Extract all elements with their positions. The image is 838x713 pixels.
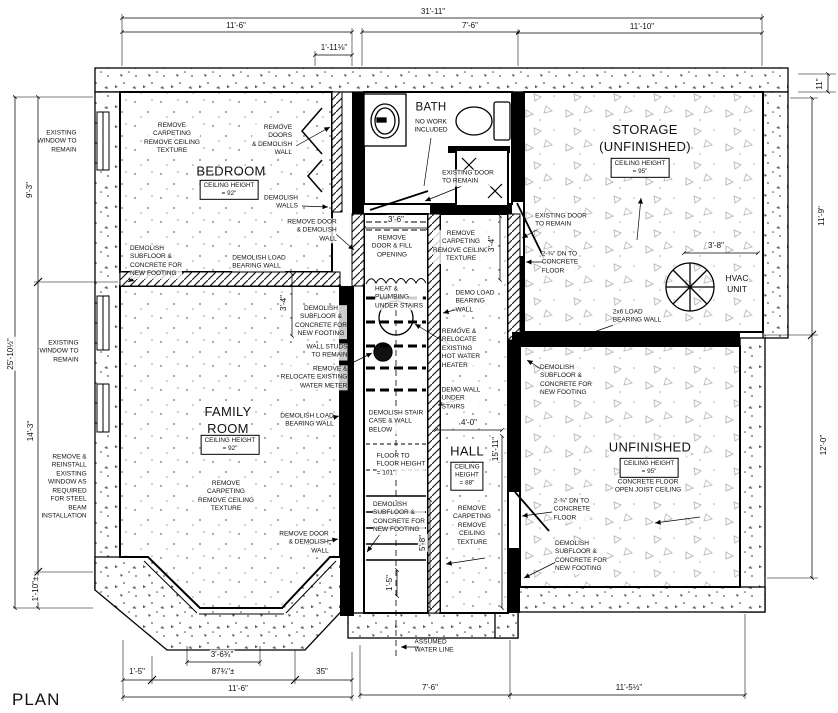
dim-right-jog: 11" xyxy=(815,77,825,90)
note-demolish-subfloor-unf-top: DEMOLISH SUBFLOOR & CONCRETE FOR NEW FOO… xyxy=(540,364,592,398)
load-bearing-2x6-wall xyxy=(512,332,740,346)
note-remove-door-family: REMOVE DOOR & DEMOLISH WALL xyxy=(279,530,328,555)
ceiling-box-storage: CEILING HEIGHT = 95" xyxy=(611,158,670,178)
window-icon xyxy=(97,112,109,170)
ceiling-box-unfinished: CEILING HEIGHT = 95" xyxy=(620,458,679,478)
dim-stair-b: 5'-8" xyxy=(418,534,428,552)
hvac-fan-icon xyxy=(666,263,714,311)
note-heat-plumbing: HEAT & PLUMBING UNDER STAIRS xyxy=(375,285,423,310)
room-label-hall: HALL xyxy=(450,444,484,461)
hall-floor xyxy=(440,214,508,613)
note-existing-window-mid: EXISTING WINDOW TO REMAIN xyxy=(39,339,78,364)
note-remove-hot-water: REMOVE & RELOCATE EXISTING HOT WATER HEA… xyxy=(442,328,480,370)
note-remove-door-fill: REMOVE DOOR & FILL OPENING xyxy=(372,234,412,259)
note-remove-carpet-bedroom: REMOVE CARPETING REMOVE CEILING TEXTURE xyxy=(144,122,200,156)
note-existing-window-top: EXISTING WINDOW TO REMAIN xyxy=(37,129,76,154)
ceiling-box-hall: CEILING HEIGHT = 88" xyxy=(450,462,483,491)
note-dn-concrete-storage: 2-¾" DN TO CONCRETE FLOOR xyxy=(542,250,578,275)
dim-vestibule-w: 3'-6" xyxy=(387,215,405,225)
dim-bottom-b1: 1'-5" xyxy=(128,667,146,677)
note-demolish-load-bearing-stair: DEMOLISH LOAD BEARING WALL xyxy=(280,413,333,430)
dim-bottom-left-overall: 11'-6" xyxy=(227,684,249,694)
ceiling-box-bedroom: CEILING HEIGHT = 92" xyxy=(200,180,259,200)
demolish-wall-hall-upper xyxy=(508,214,520,340)
dim-left-lower: 14'-3" xyxy=(26,420,36,442)
dim-left-bottom: 1'-10"± xyxy=(31,576,41,603)
dim-bottom-center: 7'-6" xyxy=(421,683,439,693)
dim-bottom-b2: 87¾"± xyxy=(211,667,236,677)
note-demolish-subfloor-left: DEMOLISH SUBFLOOR & CONCRETE FOR NEW FOO… xyxy=(130,245,182,279)
note-assumed-water-line: ASSUMED WATER LINE xyxy=(414,639,453,656)
note-load-2x6: 2x6 LOAD BEARING WALL xyxy=(613,309,662,326)
note-demolish-staircase: DEMOLISH STAIR CASE & WALL BELOW xyxy=(369,409,423,434)
room-label-family: FAMILY ROOM xyxy=(204,404,251,438)
note-remove-reinstall-window: REMOVE & REINSTALL EXISTING WINDOW AS RE… xyxy=(41,453,86,521)
room-label-unfinished: UNFINISHED xyxy=(609,440,691,457)
dim-top-left: 11'-6" xyxy=(225,21,247,31)
dim-hall-w: 4'-0" xyxy=(460,418,478,428)
note-dn-concrete-unfinished: 2-¾" DN TO CONCRETE FLOOR xyxy=(554,497,590,522)
window-icon xyxy=(97,296,109,350)
note-remove-door-demolish-bedroom: REMOVE DOOR & DEMOLISH WALL xyxy=(287,218,336,243)
dim-bottom-b3: 35" xyxy=(315,667,329,677)
dim-bottom-bay: 3'-6¾" xyxy=(210,650,235,660)
dim-left-overall: 25'-10½" xyxy=(6,337,16,371)
note-hall-remove-carpet: REMOVE CARPETING REMOVE CEILING TEXTURE xyxy=(453,505,491,547)
note-demolish-subfloor-stairs: DEMOLISH SUBFLOOR & CONCRETE FOR NEW FOO… xyxy=(373,501,425,535)
demolish-wall-bedroom xyxy=(332,92,342,212)
dim-hall-h: 15'-11" xyxy=(491,436,501,462)
note-demolish-subfloor-center: DEMOLISH SUBFLOOR & CONCRETE FOR NEW FOO… xyxy=(295,305,347,339)
dim-top-overall: 31'-11" xyxy=(420,7,446,17)
dim-stair-s: 1'-5" xyxy=(385,574,395,592)
note-demolish-load-bearing-top: DEMOLISH LOAD BEARING WALL xyxy=(232,255,285,272)
note-demo-wall-under-stairs: DEMO WALL UNDER STAIRS xyxy=(442,386,481,411)
dim-top-small: 1'-11⅛" xyxy=(320,43,348,53)
note-water-meter: REMOVE & RELOCATE EXISTING WATER METER xyxy=(281,365,348,390)
dim-top-mid: 7'-6" xyxy=(461,21,479,31)
hvac-label: HVAC UNIT xyxy=(726,273,749,295)
window-icon xyxy=(97,384,109,432)
note-remove-doors-demolish: REMOVE DOORS & DEMOLISH WALL xyxy=(252,124,292,158)
dim-wall-seg: 3'-4" xyxy=(279,294,289,312)
room-label-bedroom: BEDROOM xyxy=(196,164,265,181)
note-existing-door-bath: EXISTING DOOR TO REMAIN xyxy=(442,170,494,187)
note-demolish-subfloor-unf-bottom: DEMOLISH SUBFLOOR & CONCRETE FOR NEW FOO… xyxy=(555,540,607,574)
note-family-remove-carpet: REMOVE CARPETING REMOVE CEILING TEXTURE xyxy=(198,480,254,514)
dim-hvac: 3'-8" xyxy=(707,241,725,251)
ceiling-box-family: CEILING HEIGHT = 92" xyxy=(201,435,260,455)
room-label-bath: BATH xyxy=(415,101,446,116)
room-label-storage: STORAGE (UNFINISHED) xyxy=(599,122,691,156)
dim-left-upper: 9'-3" xyxy=(25,181,35,199)
floor-plan-sheet: BEDROOM CEILING HEIGHT = 92" BATH NO WOR… xyxy=(0,0,838,713)
dim-vestibule-h: 3'-4" xyxy=(487,235,497,253)
unfinished-note: CONCRETE FLOOR OPEN JOIST CEILING xyxy=(615,479,681,496)
note-remove-carpet-corridor: REMOVE CARPETING REMOVE CEILING TEXTURE xyxy=(433,230,489,264)
dim-right-lower: 12'-0" xyxy=(819,434,829,456)
sink-icon xyxy=(364,94,406,146)
note-floor-to-floor: FLOOR TO FLOOR HEIGHT = 101" xyxy=(377,452,426,477)
note-existing-door-storage: EXISTING DOOR TO REMAIN xyxy=(535,213,587,230)
dim-bottom-right: 11'-5½" xyxy=(615,683,643,693)
note-demo-load-bearing: DEMO LOAD BEARING WALL xyxy=(455,289,494,314)
bath-note: NO WORK INCLUDED xyxy=(414,119,447,136)
note-demolish-walls: DEMOLISH WALLS xyxy=(264,195,298,212)
plan-title: PLAN xyxy=(12,690,60,710)
dim-right-upper: 11'-9" xyxy=(817,205,827,227)
note-wall-studs: WALL STUDS TO REMAIN xyxy=(306,344,347,361)
dim-top-right: 11'-10" xyxy=(629,22,655,32)
